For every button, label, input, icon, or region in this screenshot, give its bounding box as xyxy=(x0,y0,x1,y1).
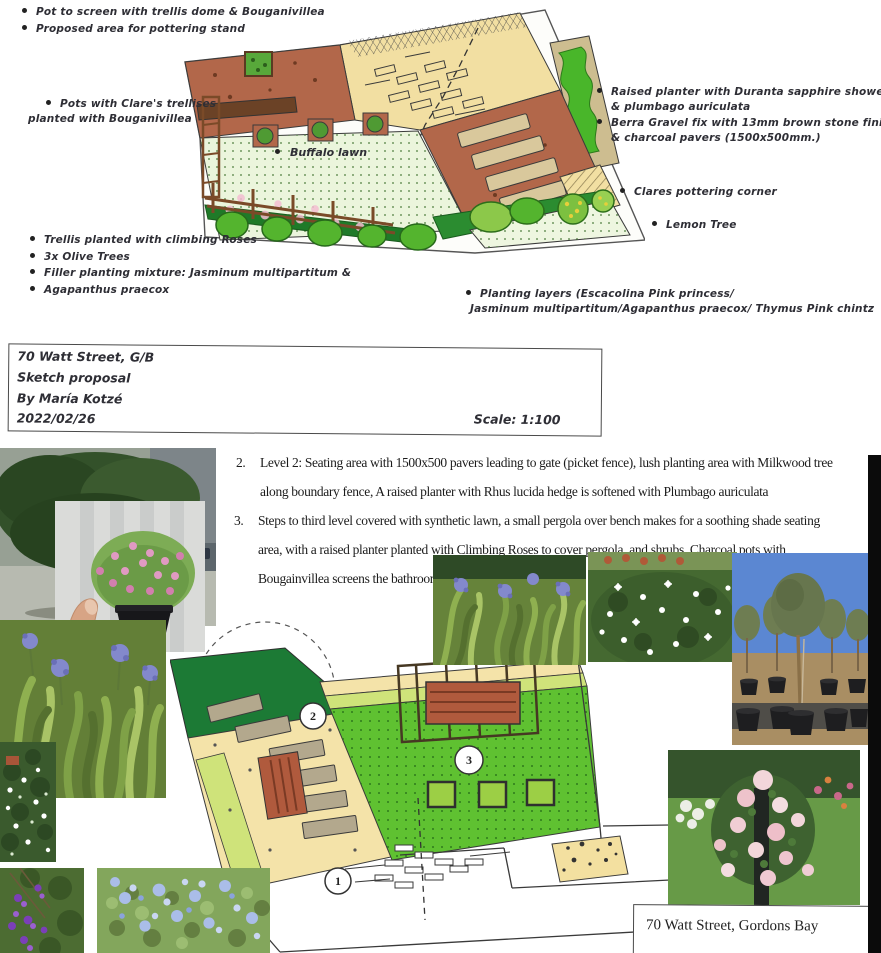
buffalo-lawn-label: Buffalo lawn xyxy=(275,146,367,159)
level-marker-3: 3 xyxy=(455,746,483,774)
lower-caption-text: 70 Watt Street, Gordons Bay xyxy=(646,917,818,935)
annotation-pot-screen: Pot to screen with trellis dome & Bougan… xyxy=(22,6,325,18)
bullet-icon xyxy=(620,188,625,193)
title-author: By María Kotzé xyxy=(17,390,123,406)
bullet-icon xyxy=(30,236,35,241)
annotation-pottering-corner: Clares pottering corner xyxy=(620,186,777,198)
annotation-agapanthus: Agapanthus praecox xyxy=(30,284,169,296)
annotation-berra-gravel-2: & charcoal pavers (1500x500mm.) xyxy=(611,132,821,144)
annotation-planting-layers-2: Jasminum multipartitum/Agapanthus praeco… xyxy=(470,303,874,315)
annotation-trellis-roses: Trellis planted with climbing Roses xyxy=(30,234,257,246)
bullet-icon xyxy=(22,8,27,13)
bullet-icon xyxy=(466,290,471,295)
bullet-icon xyxy=(30,286,35,291)
plumbago-photo xyxy=(97,868,270,953)
svg-text:2: 2 xyxy=(310,709,316,723)
note-3-line-3: Bougainvillea screens the bathroom wi xyxy=(258,571,456,587)
note-2-line-1: Level 2: Seating area with 1500x500 pave… xyxy=(260,455,833,471)
annotation-berra-gravel: Berra Gravel fix with 13mm brown stone f… xyxy=(597,117,881,129)
title-subtitle: Sketch proposal xyxy=(17,369,131,385)
climbing-roses-photo xyxy=(668,750,860,905)
bullet-icon xyxy=(597,119,602,124)
annotation-lemon-tree: Lemon Tree xyxy=(652,219,737,231)
annotation-planting-layers: Planting layers (Escacolina Pink princes… xyxy=(466,288,734,300)
lower-caption-box: 70 Watt Street, Gordons Bay xyxy=(633,904,875,953)
note-3-line-1: Steps to third level covered with synthe… xyxy=(258,513,820,529)
bullet-icon xyxy=(652,221,657,226)
bullet-icon xyxy=(597,88,602,93)
jasmine-center-photo xyxy=(588,552,737,662)
bullet-icon xyxy=(275,149,280,154)
annotation-olive-trees: 3x Olive Trees xyxy=(30,251,130,263)
garden-proposal-document: Buffalo lawn Pot to screen with trellis … xyxy=(0,0,881,953)
annotation-filler-planting: Filler planting mixture: Jasminum multip… xyxy=(30,267,351,279)
annotation-raised-planter-2: & plumbago auriculata xyxy=(611,101,750,113)
svg-text:3: 3 xyxy=(466,753,472,767)
level-marker-1: 1 xyxy=(325,868,351,894)
scan-edge-bar xyxy=(868,455,881,953)
agapanthus-center-photo xyxy=(433,555,586,665)
jasmine-small-photo xyxy=(0,742,56,862)
note-2-line-2: along boundary fence, A raised planter w… xyxy=(260,484,768,500)
bullet-icon xyxy=(30,253,35,258)
annotation-clare-trellises-2: planted with Bouganivillea xyxy=(28,113,192,125)
bullet-icon xyxy=(30,269,35,274)
title-block: 70 Watt Street, G/B Sketch proposal By M… xyxy=(8,343,603,436)
bullet-icon xyxy=(46,100,51,105)
title-scale: Scale: 1:100 xyxy=(474,411,561,427)
level-marker-2: 2 xyxy=(300,703,326,729)
duranta-photo xyxy=(0,868,84,953)
upper-plan-sketch xyxy=(175,5,645,270)
annotation-raised-planter: Raised planter with Duranta sapphire sho… xyxy=(597,86,881,98)
annotation-clare-trellises: Pots with Clare's trellises xyxy=(46,98,216,110)
annotation-pottering-stand: Proposed area for pottering stand xyxy=(22,23,245,35)
bullet-icon xyxy=(22,25,27,30)
olive-trees-photo xyxy=(732,553,868,745)
note-3-number: 3. xyxy=(234,513,243,529)
title-date: 2022/02/26 xyxy=(17,410,96,426)
title-address: 70 Watt Street, G/B xyxy=(17,348,154,364)
note-2-number: 2. xyxy=(236,455,245,471)
svg-text:1: 1 xyxy=(335,874,341,888)
